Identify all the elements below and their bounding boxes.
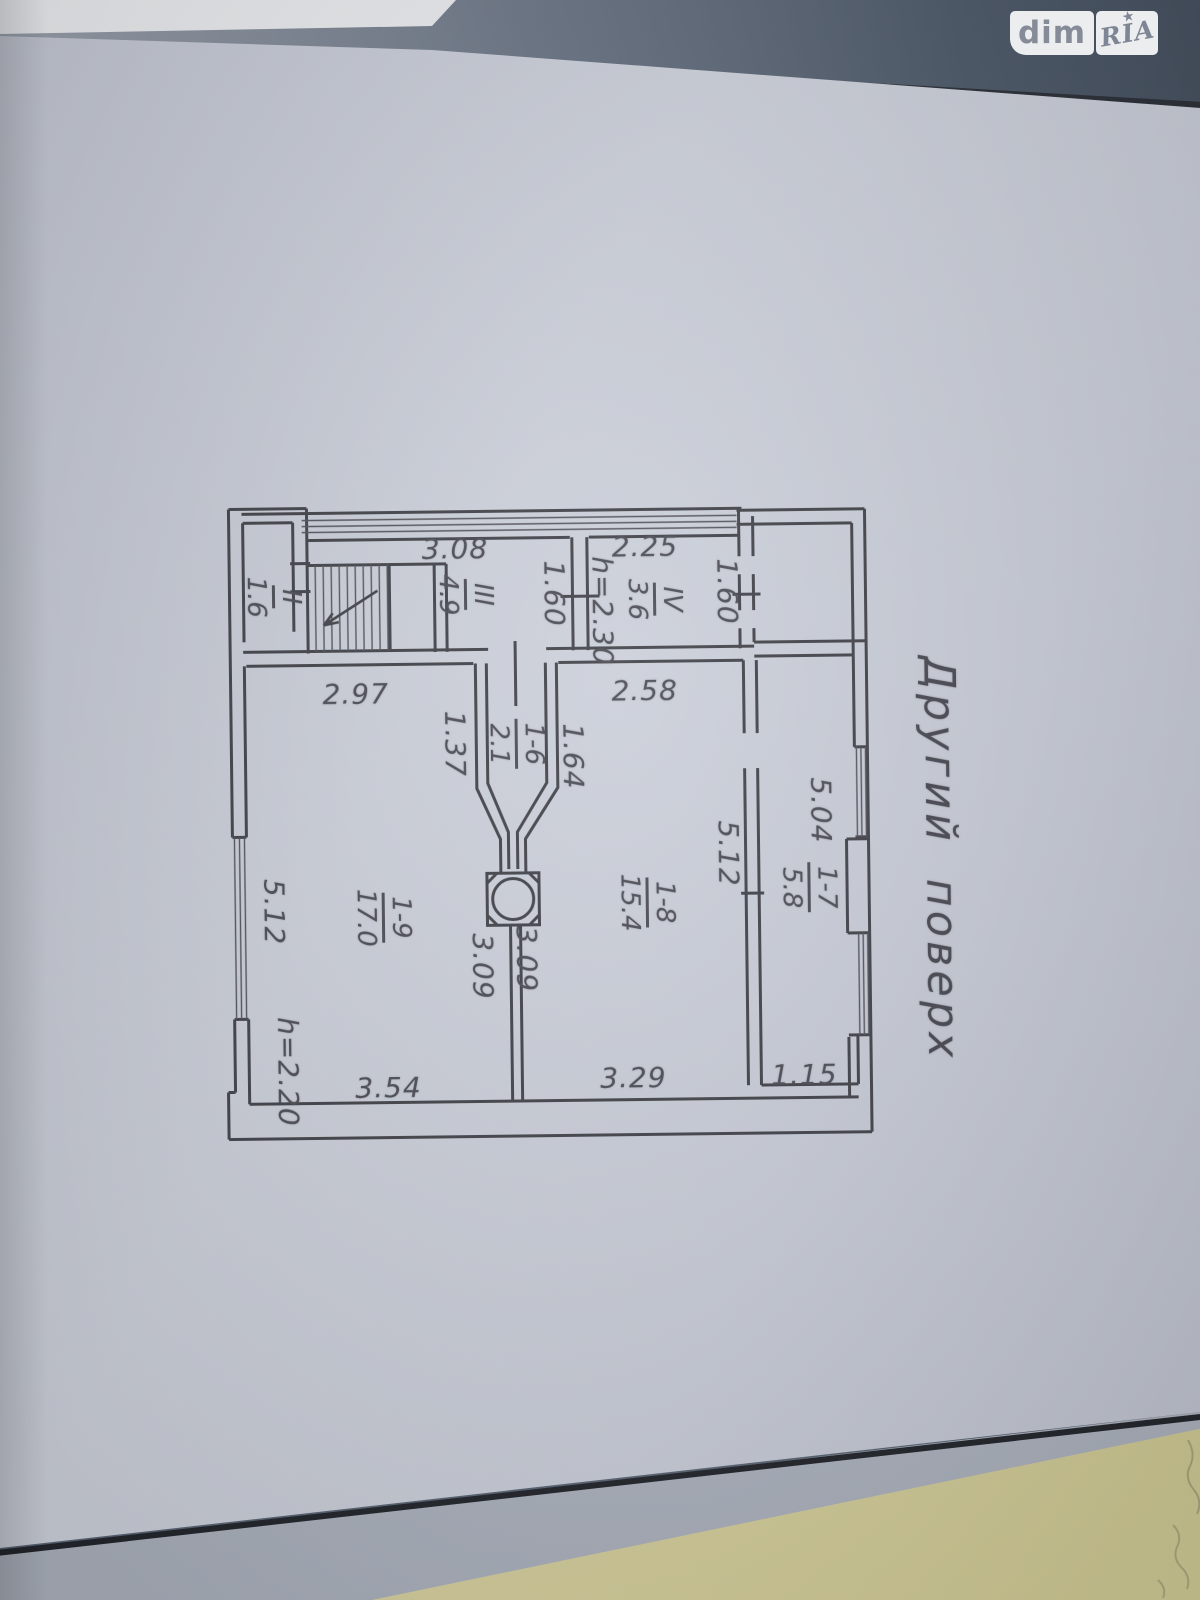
floor-plan-drawing: 3.08 2.25 2.97 2.58 3.29 1.15 3.54 1.60 … <box>0 0 1200 1600</box>
ceiling-height-label: h=2.20 <box>271 1017 305 1127</box>
room-label-1-7: 1-7 5.8 <box>776 862 842 913</box>
dim-label: 5.04 <box>804 777 838 844</box>
room-label-IV: IV 3.6 <box>622 578 688 620</box>
dim-ria-watermark: dim ★ RIA <box>1010 11 1158 55</box>
room-label-1-9: 1-9 17.0 <box>351 888 417 947</box>
stove-circle <box>492 878 533 919</box>
dim-label: 3.09 <box>466 933 500 1000</box>
ceiling-height-label: h=2.30 <box>586 556 620 666</box>
floor-plan-sheet: 3.08 2.25 2.97 2.58 3.29 1.15 3.54 1.60 … <box>0 0 1200 1600</box>
room-number: III <box>464 579 498 610</box>
dim-label: 2.58 <box>611 674 678 708</box>
room-number: 1-7 <box>807 862 842 913</box>
room-label-III: III 4.9 <box>433 574 499 616</box>
faint-handwriting <box>1118 1430 1200 1600</box>
room-label-II: II 1.6 <box>241 576 307 618</box>
room-number: 1-6 <box>515 718 550 769</box>
room-area: 15.4 <box>614 874 646 932</box>
dim-label: 2.25 <box>612 530 679 564</box>
floorplan-walls <box>0 0 1200 1600</box>
dim-label: 3.08 <box>422 532 489 566</box>
room-number: II <box>272 585 306 609</box>
dim-label: 1.15 <box>771 1058 838 1092</box>
room-area: 2.1 <box>484 723 516 765</box>
room-number: 1-8 <box>645 877 680 928</box>
page-title: Другий поверх <box>913 656 968 1062</box>
room-area: 17.0 <box>351 889 383 947</box>
photo-of-floor-plan-document: 3.08 2.25 2.97 2.58 3.29 1.15 3.54 1.60 … <box>0 0 1200 1600</box>
room-area: 5.8 <box>776 867 808 909</box>
dim-label: 5.12 <box>712 820 746 887</box>
dim-label: 3.09 <box>510 926 544 993</box>
room-area: 1.6 <box>241 576 273 618</box>
room-area: 4.9 <box>433 574 465 616</box>
room-number: IV <box>653 582 687 616</box>
dim-label: 3.29 <box>600 1061 667 1095</box>
room-label-1-8: 1-8 15.4 <box>614 873 680 932</box>
dim-label: 1.37 <box>438 710 472 777</box>
dim-label: 2.97 <box>322 677 389 711</box>
dim-logo: dim <box>1010 11 1094 55</box>
dim-label: 3.54 <box>355 1071 422 1105</box>
dim-label: 1.64 <box>557 723 591 790</box>
dim-label: 1.60 <box>538 560 572 627</box>
room-label-1-6: 1-6 2.1 <box>484 718 550 769</box>
room-number: 1-9 <box>382 892 417 943</box>
ria-logo: ★ RIA <box>1096 11 1158 55</box>
room-area: 3.6 <box>622 579 654 621</box>
dim-label: 5.12 <box>257 879 291 946</box>
dim-label: 1.60 <box>711 558 745 625</box>
